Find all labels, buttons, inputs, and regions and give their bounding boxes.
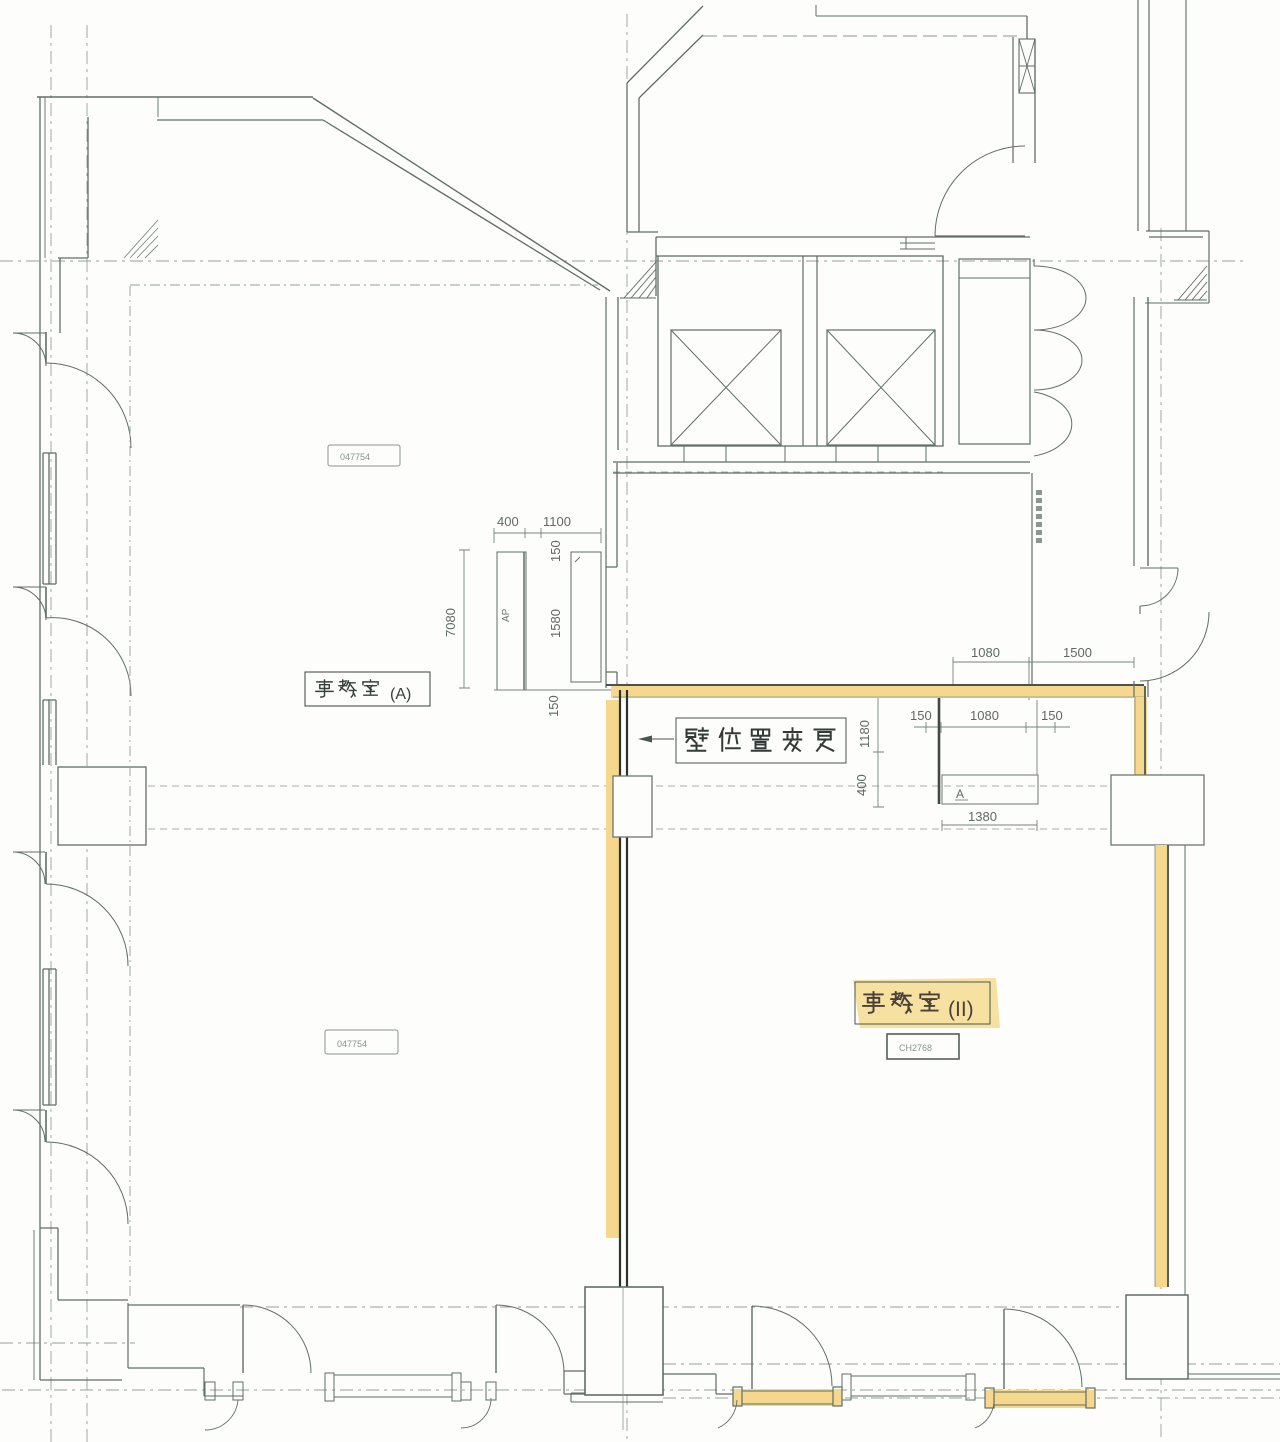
svg-text:1580: 1580 xyxy=(548,609,563,638)
svg-text:AP: AP xyxy=(501,608,512,622)
svg-text:150: 150 xyxy=(1041,708,1063,723)
svg-text:150: 150 xyxy=(546,695,561,717)
svg-text:1100: 1100 xyxy=(543,514,571,529)
svg-text:150: 150 xyxy=(910,708,932,723)
svg-text:1380: 1380 xyxy=(968,809,997,824)
svg-text:400: 400 xyxy=(854,774,869,796)
svg-text:(II): (II) xyxy=(948,998,974,1021)
svg-text:1500: 1500 xyxy=(1063,645,1092,660)
svg-text:7080: 7080 xyxy=(443,608,458,637)
svg-text:1180: 1180 xyxy=(857,720,872,748)
svg-text:400: 400 xyxy=(497,514,519,529)
svg-text:1080: 1080 xyxy=(971,645,1000,660)
svg-text:CH2768: CH2768 xyxy=(899,1043,932,1053)
svg-text:(A): (A) xyxy=(390,686,411,703)
svg-text:047754: 047754 xyxy=(340,452,370,462)
svg-text:A: A xyxy=(956,787,964,801)
svg-text:150: 150 xyxy=(548,540,563,562)
svg-text:1080: 1080 xyxy=(970,708,999,723)
svg-text:047754: 047754 xyxy=(337,1039,367,1049)
